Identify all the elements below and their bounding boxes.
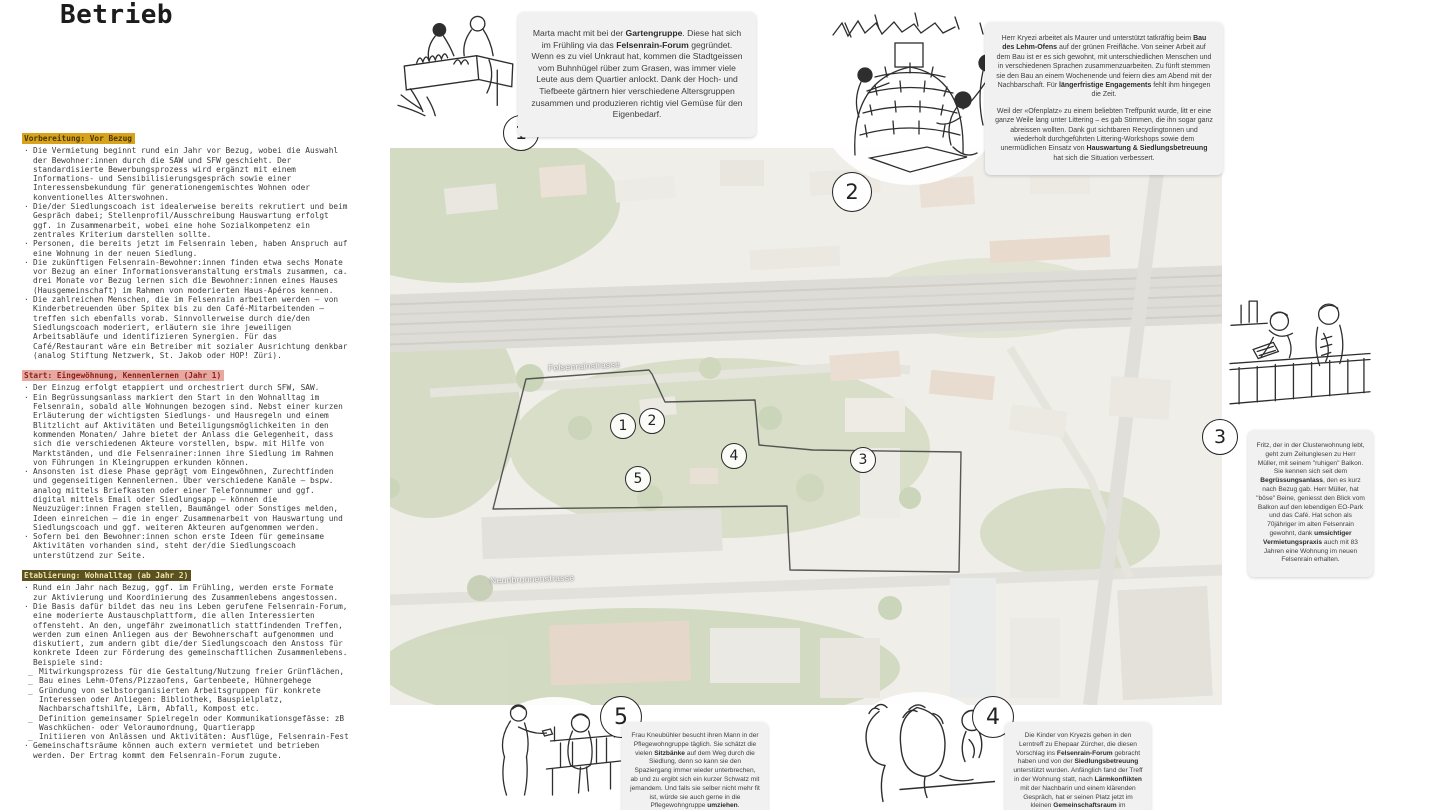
section-header: Etablierung: Wohnalltag (ab Jahr 2) [22,570,191,581]
section-item: ·Die Vermietung beginnt rund ein Jahr vo… [22,146,350,202]
map-site-number: 2 [639,408,665,434]
section-item: ·Ein Begrüssungsanlass markiert den Star… [22,393,350,467]
gardening-raised-bed-illustration [396,2,520,126]
section-item: ·Sofern bei den Bewohner:innen schon ers… [22,532,350,560]
section-item: ·Rund ein Jahr nach Bezug, ggf. im Frühl… [22,583,350,602]
section-item: ·Der Einzug erfolgt etappiert und orches… [22,383,350,392]
section-item: _Mitwirkungsprozess für die Gestaltung/N… [22,667,350,676]
section-item: ·Die zahlreichen Menschen, die im Felsen… [22,295,350,360]
story-box-lerntreff: Die Kinder von Kryezis gehen in den Lern… [1005,722,1151,810]
story-box-balkon: Fritz, der in der Clusterwohnung lebt, g… [1248,430,1373,577]
map-site-number: 1 [610,413,636,439]
aerial-map: FelsenrainstrasseNeunbrunnenstrasse 1245… [390,148,1222,705]
section-item: ·Gemeinschaftsräume können auch extern v… [22,741,350,760]
map-site-number: 3 [850,447,876,473]
page: Betrieb Vorbereitung: Vor Bezug·Die Verm… [0,0,1440,810]
section-item: _Bau eines Lehm-Ofens/Pizzaofens, Garten… [22,676,350,685]
clay-oven-sketch [815,5,1005,185]
section-item: _Definition gemeinsamer Spielregeln oder… [22,714,350,733]
balcony-newspaper-illustration [1226,283,1374,429]
vignette-2-number: 2 [832,172,872,212]
vignette-3-number: 3 [1202,419,1238,455]
balcony-sketch [1226,283,1374,429]
left-column: Vorbereitung: Vor Bezug·Die Vermietung b… [22,133,350,760]
clay-oven-build-illustration [815,5,1005,185]
section-header: Vorbereitung: Vor Bezug [22,133,135,144]
section-header: Start: Eingewöhnung, Kennenlernen (Jahr … [22,370,224,381]
section-item: ·Die zukünftigen Felsenrain-Bewohner:inn… [22,258,350,295]
section-item: ·Personen, die bereits jetzt im Felsenra… [22,239,350,258]
gardening-sketch [396,2,520,126]
section-item: _Gründung von selbstorganisierten Arbeit… [22,686,350,714]
section-item: ·Die Basis dafür bildet das neu ins Lebe… [22,602,350,667]
story-box-sitzbaenke: Frau Kneubühler besucht ihren Mann in de… [622,722,768,810]
aerial-photo [390,148,1222,705]
section-item: ·Die/der Siedlungscoach ist idealerweise… [22,202,350,239]
story-box-lehmofen: Herr Kryezi arbeitet als Maurer und unte… [985,22,1223,175]
page-title: Betrieb [60,0,173,30]
map-site-number: 4 [721,443,747,469]
section-item: _Initiieren von Anlässen und Aktivitäten… [22,732,350,741]
map-site-number: 5 [625,466,651,492]
section-item: ·Ansonsten ist diese Phase geprägt vom E… [22,467,350,532]
story-box-gartengruppe: Marta macht mit bei der Gartengruppe. Di… [518,12,756,137]
